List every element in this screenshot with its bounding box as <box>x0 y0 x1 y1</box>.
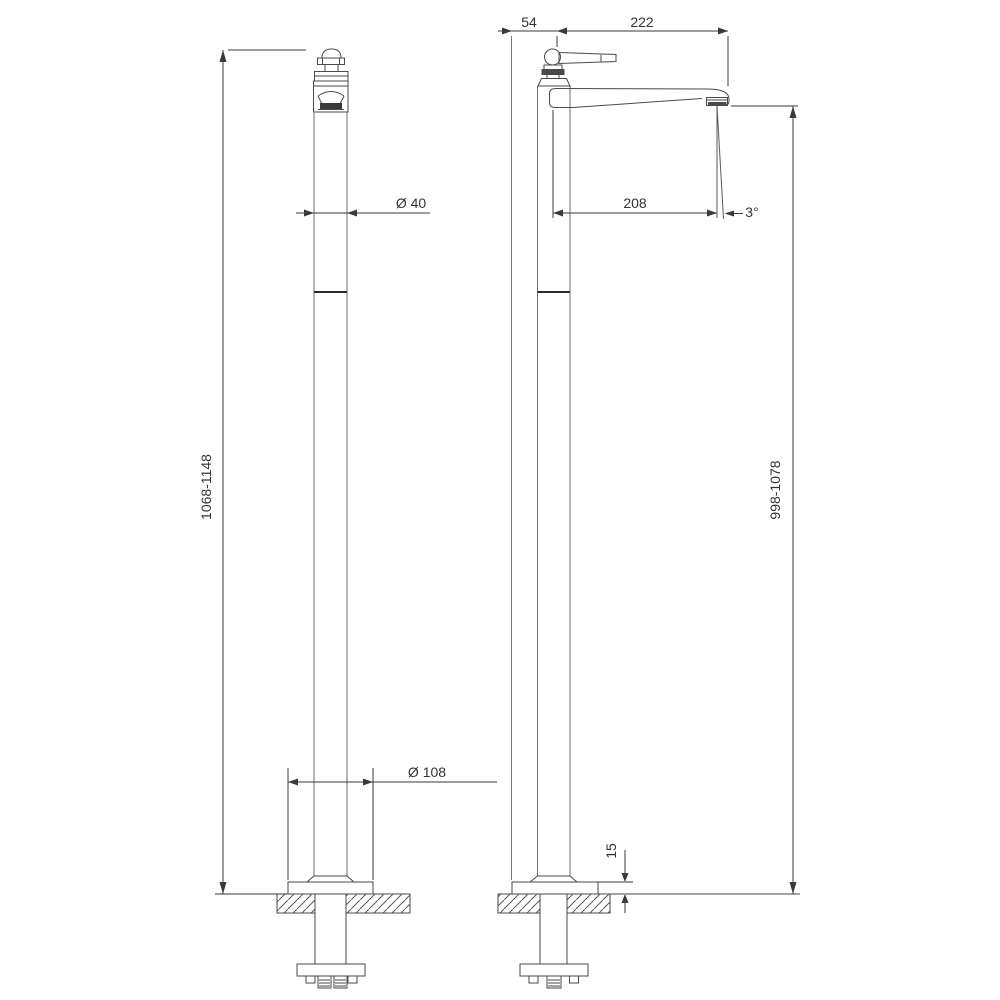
drawing-line <box>320 103 342 109</box>
mounting-bolts-front <box>306 976 357 988</box>
arrowhead <box>553 210 563 217</box>
mounting-nut-side <box>520 964 588 976</box>
dimension-handle-offset-and-reach <box>498 28 728 881</box>
base-side <box>498 876 800 988</box>
mounting-nut-front <box>297 964 365 976</box>
column-side <box>538 86 571 876</box>
base-plate-height-label: 15 <box>603 843 619 859</box>
drawing-line <box>348 976 357 983</box>
drawing-line <box>550 99 703 108</box>
dimension-spout-height <box>731 106 798 894</box>
base-plate-side <box>512 882 598 894</box>
drawing-line <box>559 53 616 64</box>
drawing-line <box>545 49 561 65</box>
spout-projection-label: 208 <box>623 195 647 211</box>
front-view <box>277 49 410 988</box>
arrowhead <box>220 50 227 62</box>
drawing-line <box>318 58 345 65</box>
overall-height-label: 1068-1148 <box>198 454 214 520</box>
arrowhead <box>718 28 728 35</box>
spout-side <box>550 89 730 108</box>
faucet-technical-drawing: 54 222 Ø 40 208 3° 1068-1148 998-1078 Ø … <box>0 0 1000 1000</box>
base-joint-side <box>530 876 577 882</box>
handle-dome-side <box>538 79 570 87</box>
column-diameter-label: Ø 40 <box>396 195 427 211</box>
arrowhead <box>304 210 314 217</box>
base-diameter-label: Ø 108 <box>408 764 446 780</box>
floor-hatch-front-left <box>277 894 315 913</box>
base-plate-front <box>288 882 373 894</box>
dimension-stream-angle <box>725 211 744 217</box>
arrowhead <box>790 882 797 894</box>
arrowhead <box>622 873 629 882</box>
drawing-line <box>306 976 315 983</box>
spout-reach-label: 222 <box>630 14 654 30</box>
base-front <box>277 876 410 988</box>
arrowhead <box>622 894 629 903</box>
arrowhead <box>288 779 298 786</box>
arrowhead <box>707 210 717 217</box>
water-stream-lines <box>717 106 724 219</box>
handle-knob-front <box>315 49 349 81</box>
arrowhead <box>557 28 567 35</box>
floor-hatch-front-right <box>346 894 410 913</box>
arrowhead <box>502 28 512 35</box>
arrowhead <box>790 106 797 118</box>
drawing-line <box>542 70 564 75</box>
spout-height-label: 998-1078 <box>767 460 783 519</box>
drawing-line <box>544 65 562 70</box>
dimension-overall-height <box>215 50 306 894</box>
drawing-line <box>570 976 579 983</box>
dimensions <box>215 28 798 914</box>
arrowhead <box>725 211 735 217</box>
drawing-line <box>322 49 341 58</box>
drawing-line <box>529 976 538 983</box>
mounting-bolts-side <box>529 976 579 988</box>
base-joint-front <box>307 876 354 882</box>
floor-hatch-side-right <box>567 894 610 913</box>
floor-hatch-side-left <box>498 894 540 913</box>
handle-body-front <box>314 81 349 112</box>
handle-offset-label: 54 <box>521 14 537 30</box>
arrowhead <box>220 882 227 894</box>
column-front <box>314 112 347 876</box>
stream-angle-label: 3° <box>745 204 758 220</box>
side-view <box>498 49 800 988</box>
drawing-line <box>325 65 338 72</box>
dimension-labels: 54 222 Ø 40 208 3° 1068-1148 998-1078 Ø … <box>198 14 783 859</box>
aerator <box>707 98 728 106</box>
drawing-line <box>318 92 344 97</box>
drawing-line <box>717 106 724 219</box>
handle-lever-side <box>538 49 616 86</box>
drawing-line <box>708 102 727 105</box>
arrowhead <box>363 779 373 786</box>
drawing-line <box>547 75 559 79</box>
technical-drawing-canvas: 54 222 Ø 40 208 3° 1068-1148 998-1078 Ø … <box>0 0 1000 1000</box>
arrowhead <box>347 210 357 217</box>
dimension-base-diameter <box>288 768 497 880</box>
